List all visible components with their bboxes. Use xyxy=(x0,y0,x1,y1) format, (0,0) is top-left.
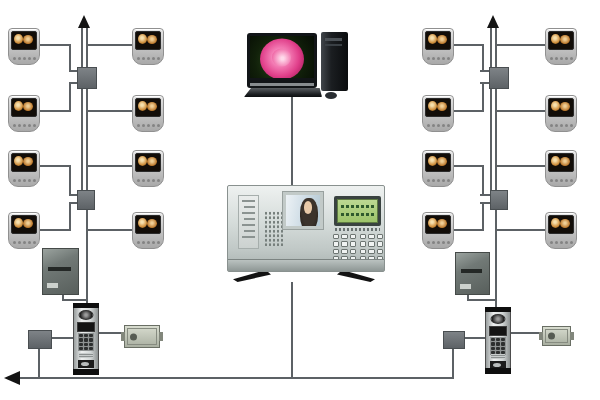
indoor-monitor xyxy=(132,95,164,132)
lcd-screen xyxy=(337,199,378,223)
monitor-buttons xyxy=(137,179,160,182)
speaker-grille-icon xyxy=(264,211,283,246)
wire xyxy=(452,345,454,379)
monitor-screen xyxy=(548,98,574,117)
electric-lock xyxy=(124,325,160,348)
guard-management-unit xyxy=(227,185,385,272)
indoor-monitor xyxy=(132,212,164,249)
wire xyxy=(69,44,71,72)
keyboard xyxy=(244,88,322,97)
riser-power-supply xyxy=(42,248,79,295)
wire xyxy=(37,110,71,112)
wire xyxy=(507,332,543,334)
indoor-monitor xyxy=(132,150,164,187)
keypad-group xyxy=(333,234,356,261)
monitor-screen xyxy=(425,31,451,50)
computer-monitor xyxy=(247,33,317,88)
monitor-buttons xyxy=(13,57,36,60)
outdoor-door-station xyxy=(485,307,511,374)
left-arrow-icon xyxy=(4,371,20,385)
wire xyxy=(452,229,484,231)
indoor-monitor xyxy=(545,95,577,132)
computer-screen xyxy=(250,36,314,78)
monitor-screen xyxy=(425,215,451,234)
floor-distributor xyxy=(77,67,97,89)
indoor-monitor xyxy=(8,212,40,249)
wire xyxy=(482,203,484,231)
wire xyxy=(86,44,133,46)
monitor-screen xyxy=(11,98,37,117)
wire xyxy=(37,165,71,167)
lock-knob xyxy=(548,333,555,340)
monitor-buttons xyxy=(427,57,450,60)
indoor-monitor xyxy=(8,95,40,132)
floor-distributor xyxy=(489,67,509,89)
indoor-monitor xyxy=(132,28,164,65)
station-keypad xyxy=(78,333,94,351)
guard-unit-keypad xyxy=(333,234,383,261)
electric-lock xyxy=(542,326,571,346)
monitor-buttons xyxy=(137,124,160,127)
monitor-buttons xyxy=(13,241,36,244)
monitor-screen xyxy=(135,153,161,172)
wire xyxy=(495,229,546,231)
up-arrow-icon xyxy=(78,15,90,28)
lock-knob xyxy=(130,333,137,340)
wire xyxy=(37,44,71,46)
left-riser-bus-line xyxy=(81,27,83,190)
card-reader xyxy=(78,360,94,368)
monitor-screen xyxy=(135,31,161,50)
station-bottom-cap xyxy=(73,369,99,375)
station-keypad xyxy=(490,337,506,355)
monitor-chin xyxy=(250,83,314,86)
wire xyxy=(495,165,546,167)
indoor-monitor xyxy=(422,28,454,65)
bottom-trunk-line xyxy=(16,377,454,379)
speaker-slots xyxy=(491,354,505,359)
caller-video-screen xyxy=(282,191,324,230)
wire xyxy=(62,299,88,301)
speaker-slots xyxy=(79,353,93,358)
riser-power-supply xyxy=(455,252,490,295)
guard-to-trunk-wire xyxy=(291,282,293,379)
indoor-monitor xyxy=(8,28,40,65)
psu-label xyxy=(47,283,58,288)
wire xyxy=(482,83,484,112)
wire xyxy=(452,165,484,167)
psu-label xyxy=(460,284,471,289)
floor-distributor xyxy=(77,190,95,210)
wire xyxy=(69,165,71,196)
wire xyxy=(495,44,546,46)
wire xyxy=(48,337,75,339)
wire xyxy=(495,110,546,112)
entrance-junction-box xyxy=(28,330,52,349)
wire xyxy=(38,345,40,379)
outdoor-door-station xyxy=(73,303,99,375)
right-riser-bus-line xyxy=(490,27,492,190)
wire xyxy=(69,83,71,112)
indoor-monitor xyxy=(545,150,577,187)
monitor-buttons xyxy=(550,124,573,127)
wire xyxy=(86,165,133,167)
wire xyxy=(452,44,484,46)
indoor-monitor xyxy=(545,212,577,249)
station-display xyxy=(489,326,507,336)
monitor-buttons xyxy=(550,241,573,244)
station-top-cap xyxy=(73,303,99,308)
monitor-buttons xyxy=(550,179,573,182)
monitor-screen xyxy=(548,31,574,50)
mouse xyxy=(325,92,337,99)
monitor-buttons xyxy=(427,179,450,182)
entrance-junction-box xyxy=(443,331,465,349)
wire xyxy=(467,299,497,301)
lcd-display xyxy=(334,196,381,226)
monitor-screen xyxy=(425,98,451,117)
computer-tower xyxy=(321,32,348,91)
indoor-monitor xyxy=(422,95,454,132)
label-strip xyxy=(238,195,259,249)
psu-slot xyxy=(461,269,483,273)
drive-bay xyxy=(325,44,342,46)
monitor-buttons xyxy=(13,124,36,127)
wire xyxy=(86,229,133,231)
monitor-buttons xyxy=(137,57,160,60)
rose-wallpaper xyxy=(260,38,304,78)
indoor-monitor xyxy=(422,150,454,187)
computer-to-guard-wire xyxy=(291,96,293,187)
up-arrow-icon xyxy=(487,15,499,28)
psu-slot xyxy=(48,267,71,271)
wire xyxy=(86,110,133,112)
indoor-monitor xyxy=(422,212,454,249)
monitor-screen xyxy=(425,153,451,172)
monitor-buttons xyxy=(550,57,573,60)
wire xyxy=(482,165,484,196)
monitor-screen xyxy=(548,153,574,172)
wire xyxy=(37,229,71,231)
monitor-screen xyxy=(11,153,37,172)
wire xyxy=(452,110,484,112)
keypad-group xyxy=(360,234,383,261)
wire xyxy=(482,44,484,72)
monitor-buttons xyxy=(13,179,36,182)
floor-distributor xyxy=(490,190,508,210)
monitor-screen xyxy=(135,215,161,234)
monitor-screen xyxy=(135,98,161,117)
indoor-monitor xyxy=(545,28,577,65)
station-top-cap xyxy=(485,307,511,312)
intercom-wiring-diagram xyxy=(0,0,600,400)
indoor-monitor xyxy=(8,150,40,187)
monitor-buttons xyxy=(427,124,450,127)
station-display xyxy=(77,322,95,332)
monitor-buttons xyxy=(427,241,450,244)
camera-icon xyxy=(491,314,506,324)
caller-portrait xyxy=(286,195,320,226)
monitor-buttons xyxy=(137,241,160,244)
drive-bay xyxy=(325,38,342,41)
monitor-screen xyxy=(11,31,37,50)
camera-icon xyxy=(79,310,94,320)
wire xyxy=(69,203,71,231)
monitor-screen xyxy=(548,215,574,234)
lcd-caption-strip xyxy=(335,228,380,231)
station-bottom-cap xyxy=(485,368,511,374)
monitor-screen xyxy=(11,215,37,234)
